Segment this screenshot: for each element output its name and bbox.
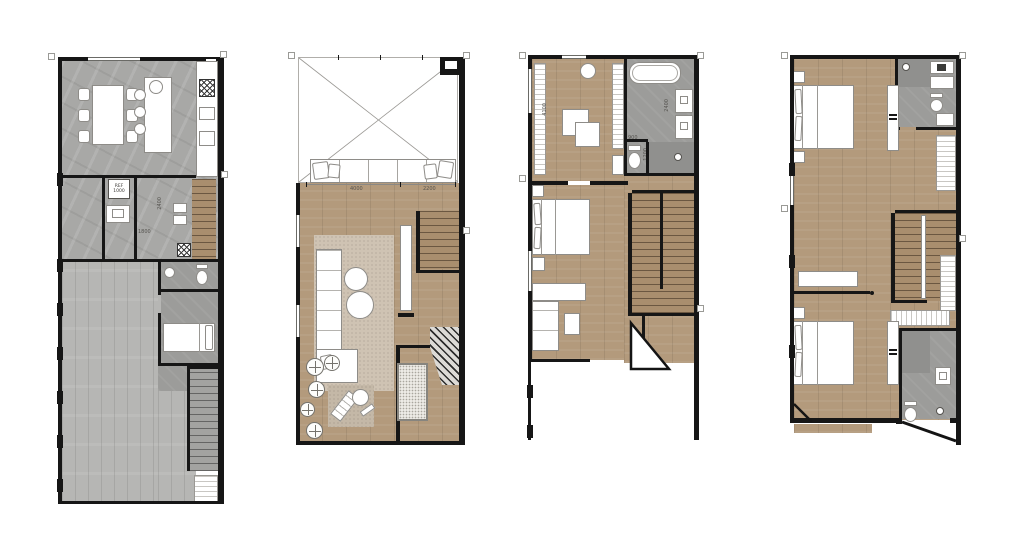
bedroom-door-gap	[568, 181, 590, 185]
nightstand	[532, 257, 545, 271]
stair-bottom-wall	[628, 313, 694, 316]
grid-bubble	[48, 53, 55, 60]
closet-strip	[194, 475, 218, 502]
toilet-bowl	[628, 152, 641, 169]
rooms-left-wall	[158, 261, 161, 366]
cooktop	[199, 79, 215, 97]
bench-cushion	[327, 163, 340, 178]
right-wall	[218, 57, 224, 504]
stair-top-wall	[632, 190, 694, 193]
bottom-wall	[62, 501, 218, 504]
bed-pillow	[794, 352, 802, 377]
pantry-wall-a	[102, 178, 105, 261]
dimension-line	[306, 184, 456, 185]
coffee-table	[346, 291, 374, 319]
dining-chair	[78, 109, 90, 122]
pantry-cabinet	[173, 215, 187, 225]
pantry-wall-b	[134, 178, 137, 261]
sink-cabinet	[936, 113, 954, 126]
niche-wall	[642, 315, 645, 345]
column-marker	[789, 255, 795, 268]
top-wall	[792, 55, 956, 59]
grid-bubble	[781, 205, 788, 212]
bench-table	[798, 271, 858, 287]
bath-door-gap	[900, 127, 916, 130]
laundry-unit	[930, 76, 954, 89]
grid-bubble	[959, 52, 966, 59]
toilet-bowl	[196, 270, 208, 285]
door-jamb	[896, 418, 902, 424]
half-wall-post	[870, 291, 874, 295]
partition-tick	[889, 353, 897, 355]
bed-pillow	[794, 116, 802, 141]
toilet-tank	[628, 145, 641, 151]
bench-cushion	[437, 160, 454, 179]
wc-wall-v	[646, 142, 649, 175]
stair-center-wall	[660, 193, 663, 289]
bath-wall-bottom	[624, 173, 694, 176]
column-marker	[57, 259, 63, 272]
stool	[580, 63, 596, 79]
dining-chair	[78, 130, 90, 143]
grid-bubble	[463, 227, 470, 234]
porch-strip	[794, 424, 872, 433]
powder-sink	[164, 267, 175, 278]
column-marker	[57, 479, 63, 492]
column-marker	[57, 303, 63, 316]
plunge-pool	[397, 363, 428, 421]
left-window	[296, 305, 300, 337]
nesting-table	[575, 122, 600, 147]
wc-wall-h	[624, 139, 648, 142]
bed-blanket-line	[817, 321, 818, 385]
grid-tick	[422, 55, 423, 60]
terrace-wall-h	[396, 345, 430, 348]
partition-tick	[889, 118, 897, 120]
bottom-wall	[298, 441, 460, 445]
right-wall	[694, 55, 699, 440]
half-wall	[794, 291, 870, 294]
bar-stool	[134, 89, 146, 101]
left-wall	[790, 55, 794, 423]
toilet-bowl	[930, 99, 943, 112]
floor-plan-3: 2400 900 1200 4100	[528, 55, 700, 440]
floor-plan-sheet: REF 1000 2400 1800	[0, 0, 1024, 539]
side-table	[352, 389, 369, 406]
nightstand	[793, 307, 805, 319]
corner-sofa-top	[532, 283, 586, 301]
shower-head-icon	[674, 153, 682, 161]
grid-bubble	[697, 305, 704, 312]
sink-bowl	[939, 372, 947, 380]
vanity-sink-bowl	[680, 96, 688, 104]
dim-label-1800: 1800	[138, 229, 151, 235]
floor-drain	[177, 243, 191, 257]
planter-pot	[306, 422, 323, 439]
shower-head-icon	[902, 63, 910, 71]
column-marker	[57, 347, 63, 360]
deck-top-wall	[62, 259, 218, 262]
ref-label-line2: 1000	[109, 189, 129, 194]
grid-bubble	[959, 235, 966, 242]
right-wall	[956, 55, 961, 445]
planter-pot	[306, 358, 324, 376]
door-jamb	[950, 418, 958, 423]
left-window	[296, 215, 300, 247]
top-window	[562, 55, 586, 59]
top-wall	[530, 55, 694, 59]
island-sink	[149, 80, 163, 94]
laundry-drum	[937, 64, 946, 71]
stair-top-wall	[895, 210, 956, 213]
guest-bed-pillow	[205, 325, 213, 350]
shower-floor	[649, 142, 694, 173]
bottom-wall	[792, 418, 898, 423]
dim-label-4000: 4000	[350, 186, 363, 192]
stair-bottom-wall	[891, 300, 927, 303]
pantry-top-wall	[62, 175, 196, 178]
left-window	[528, 69, 532, 113]
dining-chair	[78, 88, 90, 101]
left-window	[790, 171, 794, 205]
grid-bubble	[221, 171, 228, 178]
grid-tick	[338, 55, 339, 60]
column-marker	[57, 173, 63, 186]
lower-wall	[530, 359, 590, 362]
grid-bubble	[519, 175, 526, 182]
toilet-bowl	[904, 407, 917, 422]
bath2-wall-top	[899, 328, 956, 331]
dim-label-2400: 2400	[664, 99, 670, 112]
dim-label-2400: 2400	[157, 197, 163, 210]
deck-floor	[62, 262, 158, 504]
counter-sink	[199, 107, 215, 120]
toilet-tank	[930, 93, 943, 98]
grid-bubble	[220, 51, 227, 58]
planter-pot	[300, 402, 315, 417]
planter-pot	[324, 355, 340, 371]
grid-bubble	[463, 52, 470, 59]
column-marker	[57, 435, 63, 448]
wardrobe-band-h	[890, 310, 950, 326]
shower-bottom	[902, 331, 930, 373]
guest-bed-blanket-line	[199, 323, 200, 352]
stair-left-wall	[891, 213, 895, 303]
stair-top-wall	[187, 366, 218, 369]
bed-pillow	[794, 89, 802, 114]
top-window	[88, 57, 140, 61]
room-door-gap	[158, 295, 161, 313]
dim-tick	[455, 182, 456, 187]
floor-plan-2: 4000 2200	[296, 55, 468, 447]
column-marker	[527, 385, 533, 398]
media-counter	[400, 225, 412, 311]
partition-tick	[889, 114, 897, 116]
coffee-table	[344, 267, 368, 291]
bathtub-inner	[632, 65, 678, 81]
toilet-tank	[904, 401, 917, 406]
nightstand	[793, 71, 805, 83]
stair-left-wall	[628, 193, 632, 315]
nightstand	[532, 185, 544, 197]
column-marker	[789, 345, 795, 358]
sofa	[316, 249, 342, 351]
stair-lower	[190, 365, 218, 471]
partition-tick	[889, 349, 897, 351]
right-wall	[459, 57, 465, 445]
stair-wall-bottom	[416, 270, 460, 273]
bar-stool	[134, 106, 146, 118]
wardrobe-left	[534, 63, 546, 175]
pantry-cabinet	[173, 203, 187, 213]
stair-up	[420, 211, 460, 269]
bath2-wall-v	[899, 331, 902, 419]
side-table	[564, 313, 580, 335]
toilet-tank	[196, 264, 208, 269]
column-marker	[527, 425, 533, 438]
stair-rail	[921, 215, 926, 299]
bed-pillow	[794, 325, 802, 350]
bed-blanket-line	[555, 199, 556, 255]
wardrobe-right	[936, 135, 956, 191]
grid-bubble	[781, 52, 788, 59]
floor-plan-1: REF 1000 2400 1800	[58, 55, 226, 504]
powder-bottom-wall	[158, 289, 218, 292]
counter-appliance	[199, 131, 215, 146]
bed-pillow	[533, 227, 541, 249]
grid-bubble	[697, 52, 704, 59]
corner-wall-notch	[445, 61, 457, 69]
vanity-sink-bowl	[680, 122, 688, 130]
oven-inner	[112, 209, 124, 218]
refrigerator: REF 1000	[108, 179, 130, 199]
partition-tick	[398, 313, 414, 317]
dim-label-4100: 4100	[542, 103, 548, 116]
shower-head-icon	[936, 407, 944, 415]
corner-sofa-side	[532, 301, 559, 351]
planter-pot	[308, 381, 325, 398]
left-window	[528, 251, 532, 291]
bar-stool	[134, 123, 146, 135]
column-marker	[57, 391, 63, 404]
dim-label-2200: 2200	[423, 186, 436, 192]
dim-tick	[400, 182, 401, 187]
wardrobe-band-v	[940, 255, 956, 311]
bed-blanket-line	[817, 85, 818, 149]
grid-tick	[380, 55, 381, 60]
nightstand	[793, 151, 805, 163]
stair-upper	[192, 179, 216, 259]
staircase	[632, 193, 694, 315]
bath-wall-v	[624, 59, 627, 175]
grid-bubble	[519, 52, 526, 59]
column-marker	[789, 163, 795, 176]
floor-plan-4	[790, 55, 962, 445]
bed-pillow	[533, 203, 542, 225]
bench-cushion	[423, 163, 438, 179]
stair-side-wall	[187, 366, 190, 471]
cabinet	[612, 155, 624, 175]
dim-tick	[306, 182, 307, 187]
shelf-partition	[612, 63, 624, 149]
dining-table	[92, 85, 124, 145]
grid-bubble	[288, 52, 295, 59]
stair-wall	[416, 211, 420, 273]
